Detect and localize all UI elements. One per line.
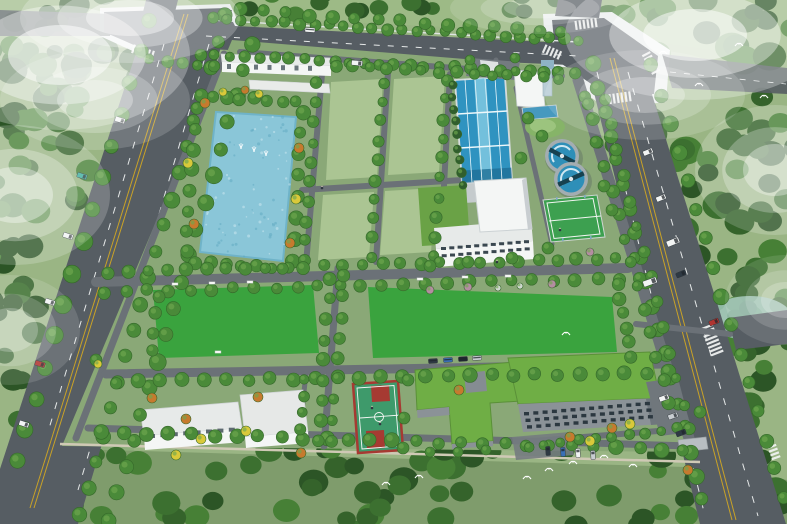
sport-court-post-1 [556,197,558,200]
large-lawn-east [368,287,617,358]
clarifier-1-hub [560,154,564,158]
sport-court-post-3 [562,238,564,241]
scene-svg [0,0,787,524]
basketball-key-top [371,385,390,402]
pond-group [200,112,296,261]
pond [200,112,296,261]
multi-sport-court [543,195,605,242]
clarifier-2-hub [569,177,573,181]
large-lawn-west [153,285,319,358]
large-lawns [153,285,617,358]
lawn-plot-3 [318,192,374,260]
sport-court-post-4 [590,236,592,239]
sport-court-post-2 [584,195,586,198]
aerial-rendering [0,0,787,524]
